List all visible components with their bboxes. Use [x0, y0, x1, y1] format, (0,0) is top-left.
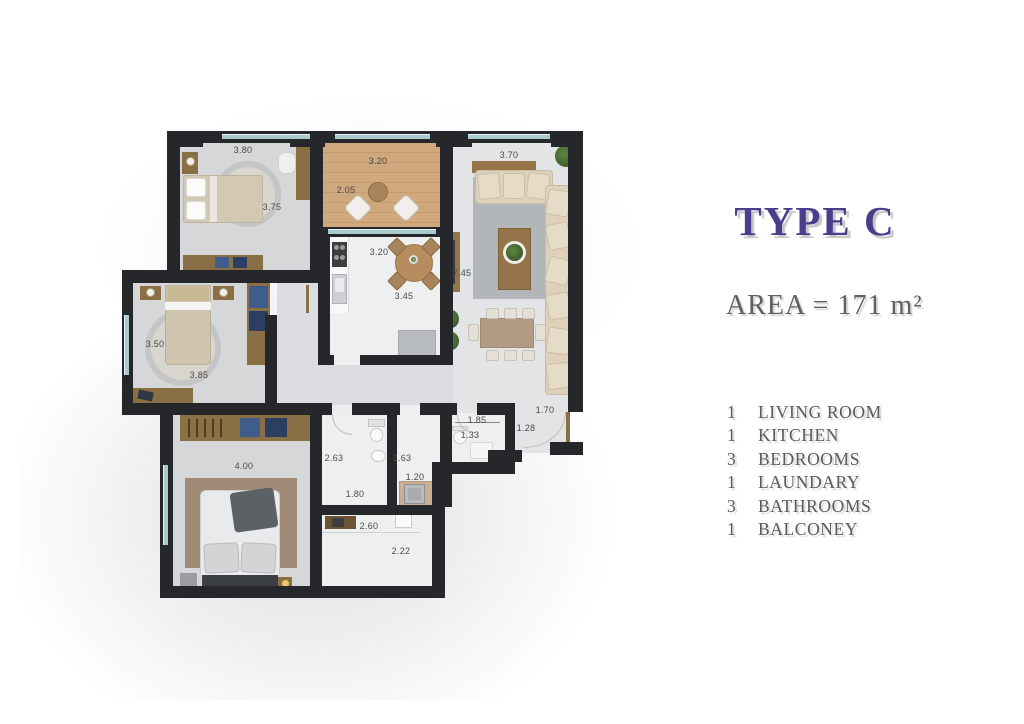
- room-count: 1: [727, 471, 758, 494]
- wall-kitchen-left: [318, 237, 330, 365]
- dining-chair-5: [504, 350, 517, 361]
- room-name: LAUNDARY: [758, 472, 860, 492]
- room-name: LIVING ROOM: [758, 402, 882, 422]
- window-bedroom2: [124, 315, 129, 375]
- dining-chair-6: [522, 350, 535, 361]
- window-bedroom3: [163, 465, 168, 545]
- wall-entry-corner: [550, 442, 583, 455]
- wall-bedroom-divider-1: [122, 270, 320, 283]
- page: { "panel": { "title": "TYPE C", "area": …: [0, 0, 1024, 724]
- wall-bedroom-divider-2: [122, 403, 322, 415]
- dimension-label: 1.80: [346, 489, 365, 499]
- sofa-cushion-1: [477, 172, 502, 200]
- bedroom1-lamp: [186, 157, 195, 166]
- room-legend: 1LIVING ROOM 1KITCHEN 3BEDROOMS 1LAUNDAR…: [727, 401, 882, 541]
- bedroom1-pillow-2: [186, 201, 206, 220]
- dimension-label: 3.75: [263, 202, 282, 212]
- entry-door-jamb: [566, 412, 570, 442]
- bedroom3-pillow-left: [203, 542, 240, 574]
- bedroom2-lamp-left: [146, 288, 155, 297]
- bedroom3-pillow-right: [240, 542, 277, 574]
- stove-burners: [334, 245, 339, 250]
- dining-chair-4: [486, 350, 499, 361]
- dimension-label: 3.85: [190, 370, 209, 380]
- area-label: AREA = 171 m²: [726, 290, 923, 322]
- kitchen-plate: [409, 255, 418, 264]
- hallway-floor: [310, 365, 453, 405]
- window-living: [468, 134, 550, 139]
- bedroom2-lamp-right: [219, 288, 228, 297]
- dimension-label: 3.45: [395, 291, 414, 301]
- bathroom1-toilet: [370, 428, 383, 442]
- dimension-label: 2.63: [325, 453, 344, 463]
- kitchen-island: [398, 330, 436, 357]
- room-list-item: 3BATHROOMS: [727, 495, 882, 518]
- dimension-label: 1.20: [406, 472, 425, 482]
- dining-chair-2: [504, 308, 517, 319]
- sofa-cushion-2: [503, 173, 525, 199]
- wall-living-right: [568, 143, 583, 412]
- bedroom2-pillow: [167, 287, 209, 301]
- bedroom1-pillow: [186, 178, 206, 197]
- wall-laundry-right: [440, 413, 452, 507]
- room-list-item: 1BALCONEY: [727, 518, 882, 541]
- wall-bedroom3-right: [310, 415, 322, 598]
- room-count: 3: [727, 495, 758, 518]
- dining-table: [480, 318, 534, 348]
- room-name: BEDROOMS: [758, 449, 860, 469]
- room-list-item: 3BEDROOMS: [727, 448, 882, 471]
- wall-bath-mid: [310, 505, 440, 515]
- window-bedroom1: [222, 134, 310, 139]
- wall-bedroom2-right: [265, 315, 277, 403]
- dimension-label: 7.45: [453, 268, 472, 278]
- dimension-label: 3.20: [370, 247, 389, 257]
- dimension-label: 1.70: [536, 405, 555, 415]
- bedroom2-sheet-fold: [165, 302, 211, 310]
- bathroom1-sink: [371, 450, 386, 462]
- bathroom1-toilet-tank: [368, 419, 385, 427]
- wall-bath-top-b: [352, 403, 400, 415]
- kitchen-sink-basin: [335, 278, 344, 292]
- dining-chair-end-right: [535, 324, 546, 341]
- dimension-label: 2.22: [392, 546, 411, 556]
- coffee-table-plant: [506, 244, 523, 261]
- washing-machine: [404, 484, 425, 504]
- bedroom3-hangers: [188, 419, 190, 437]
- dimension-label: 3.80: [234, 145, 253, 155]
- dimension-label: 3.20: [369, 156, 388, 166]
- dimension-label: 3.70: [500, 150, 519, 160]
- room-name: KITCHEN: [758, 425, 839, 445]
- plan-type-title: TYPE C: [725, 197, 905, 245]
- dimension-label: 4.00: [235, 461, 254, 471]
- room-list-item: 1LAUNDARY: [727, 471, 882, 494]
- bedroom1-chair: [278, 152, 296, 174]
- balcony-table: [368, 182, 388, 202]
- wall-kitchen-living: [440, 143, 453, 365]
- bathroom2-basin: [332, 518, 344, 527]
- room-list-item: 1KITCHEN: [727, 424, 882, 447]
- room-list-item: 1LIVING ROOM: [727, 401, 882, 424]
- window-balcony: [335, 134, 430, 139]
- bedroom1-wardrobe-right: [296, 144, 311, 200]
- wall-bath-top-a: [310, 403, 332, 415]
- dimension-label: 1.85: [468, 415, 487, 425]
- dining-chair-1: [486, 308, 499, 319]
- window-balcony-door: [328, 229, 436, 234]
- dimension-label: 2.60: [360, 521, 379, 531]
- room-count: 1: [727, 518, 758, 541]
- bathroom2-glass-line: [322, 532, 420, 533]
- bedroom3-throw-blanket: [229, 487, 278, 533]
- bathroom2-shower: [395, 514, 412, 528]
- corridor-door-jamb: [306, 285, 309, 313]
- dimension-label: 3.50: [146, 339, 165, 349]
- wall-kitchen-bottom-a: [318, 355, 334, 365]
- dimension-label: 2.05: [337, 185, 356, 195]
- room-name: BATHROOMS: [758, 496, 871, 516]
- wall-entry-bottom: [488, 450, 522, 462]
- dimension-label: 1.28: [517, 423, 536, 433]
- bedroom3-clothes-navy: [265, 418, 287, 437]
- dining-chair-end-left: [468, 324, 479, 341]
- room-count: 3: [727, 448, 758, 471]
- bedroom1-duvet-fold: [210, 176, 217, 222]
- floor-plan: 3.80 3.75 3.20 2.05 3.70 7.45 3.20 3.45 …: [120, 128, 585, 600]
- room-count: 1: [727, 401, 758, 424]
- dimension-label: 2.63: [393, 453, 412, 463]
- wall-kitchen-bottom-b: [360, 355, 440, 365]
- dimension-label: 1.33: [461, 430, 480, 440]
- bedroom3-clothes-blue: [240, 418, 260, 437]
- room-name: BALCONEY: [758, 519, 858, 539]
- dining-chair-3: [522, 308, 535, 319]
- bedroom1-clothes-blue: [215, 257, 229, 268]
- wall-bedroom1-left: [167, 143, 180, 283]
- bedroom1-clothes-navy: [233, 257, 247, 268]
- wall-bottom: [160, 586, 445, 598]
- room-count: 1: [727, 424, 758, 447]
- bedroom2-clothes-blue: [249, 286, 268, 308]
